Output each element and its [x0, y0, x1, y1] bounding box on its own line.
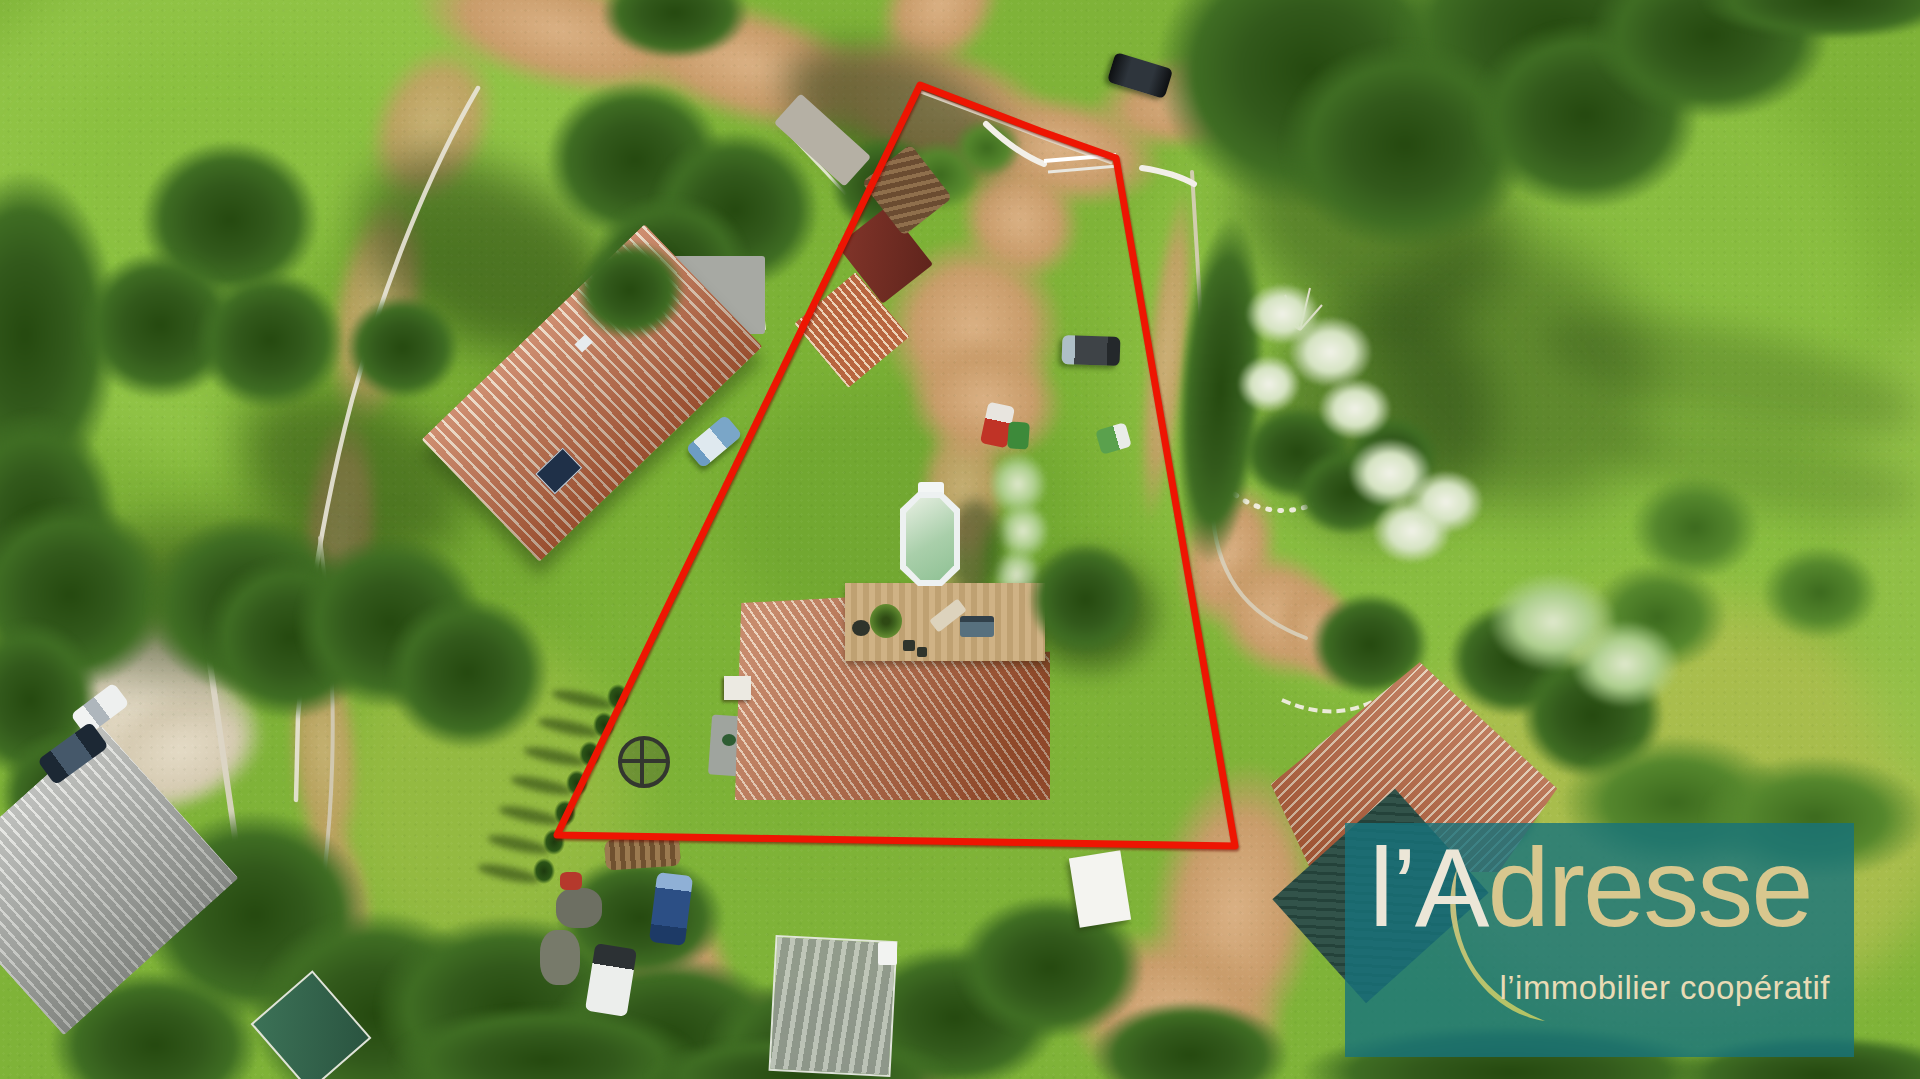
brand-rest: dresse [1487, 825, 1811, 950]
gate-wing-wall [1142, 168, 1194, 184]
aerial-photo: l’Adresse l’immobilier coopératif [0, 0, 1920, 1079]
brand-prefix: l’A [1369, 825, 1487, 950]
brand-wordmark: l’Adresse [1369, 829, 1812, 948]
boundary-polygon [557, 85, 1235, 846]
watermark-panel: l’Adresse l’immobilier coopératif [1345, 823, 1854, 1057]
brand-tagline: l’immobilier coopératif [1499, 969, 1830, 1007]
gate-bar [1048, 166, 1118, 172]
